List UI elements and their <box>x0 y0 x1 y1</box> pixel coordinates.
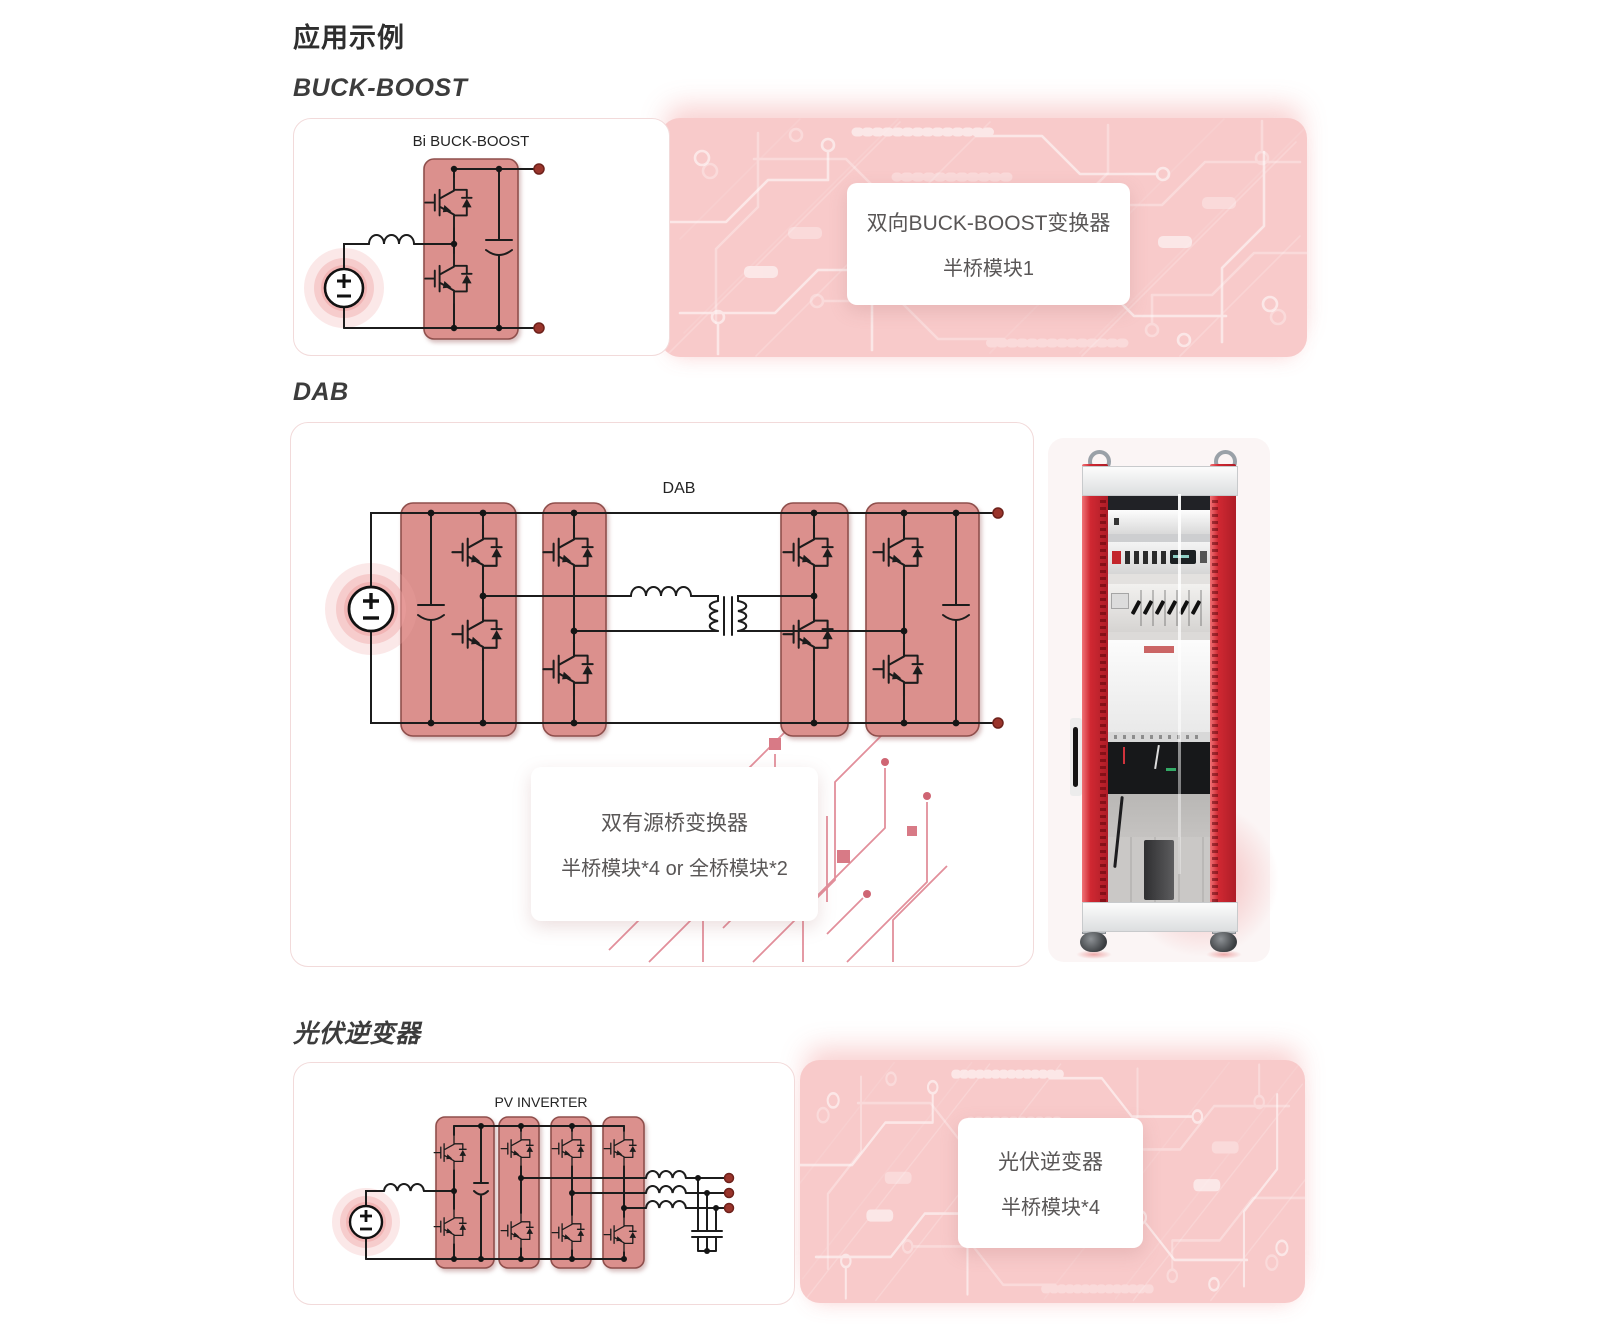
half-bridge-module <box>424 159 518 339</box>
callout-line2: 半桥模块1 <box>943 252 1034 281</box>
rack-bottom-compartment <box>1108 794 1210 908</box>
buck-boost-circuit-card: Bi BUCK-BOOST <box>293 118 670 356</box>
phase-terminal-b <box>725 1189 734 1198</box>
voltage-source <box>349 587 393 631</box>
circuit-title: Bi BUCK-BOOST <box>413 133 530 150</box>
rack-bottom-panel <box>1082 902 1238 932</box>
section-heading-buck-boost: BUCK-BOOST <box>293 74 467 103</box>
rack-shelf-controller <box>1108 510 1210 534</box>
rack-detail <box>1108 534 1210 542</box>
rack-rail-right <box>1210 464 1236 922</box>
rack-rail-left <box>1082 464 1108 922</box>
callout-line2: 半桥模块*4 <box>1001 1191 1100 1220</box>
rack-shelf-unit <box>1108 640 1210 732</box>
pv-inverter-circuit-diagram: PV INVERTER <box>294 1063 794 1304</box>
pv-callout: 光伏逆变器 半桥模块*4 <box>958 1118 1143 1248</box>
callout-line2: 半桥模块*4 or 全桥模块*2 <box>561 852 788 881</box>
rack-shelf-power-supply <box>1108 542 1210 574</box>
section-heading-dab: DAB <box>293 378 349 407</box>
circuit-title: DAB <box>663 480 696 497</box>
phase-terminal-a <box>725 1174 734 1183</box>
rack-top-panel <box>1082 466 1238 496</box>
page-title: 应用示例 <box>293 16 405 55</box>
rack-shelf-breakers <box>1108 584 1210 632</box>
wires <box>366 1126 729 1259</box>
output-terminal-positive <box>993 508 1003 518</box>
equipment-rack-photo <box>1048 438 1270 962</box>
rack-shelf-instrument <box>1108 742 1210 794</box>
voltage-source <box>350 1206 382 1238</box>
dab-circuit-diagram: DAB <box>291 423 1033 763</box>
door-handle <box>1070 718 1082 796</box>
rack-detail <box>1108 494 1210 510</box>
callout-line1: 光伏逆变器 <box>998 1146 1103 1176</box>
title-underline-bar <box>293 56 546 65</box>
page: 应用示例 BUCK-BOOST Bi BUCK-BOOST <box>0 0 1600 1326</box>
output-terminal-negative <box>534 323 544 333</box>
phase-terminal-c <box>725 1204 734 1213</box>
pv-circuit-card: PV INVERTER <box>293 1062 795 1305</box>
output-terminal-negative <box>993 718 1003 728</box>
rack-detail <box>1108 574 1210 584</box>
dab-circuit-card: DAB <box>290 422 1034 967</box>
callout-line1: 双有源桥变换器 <box>601 807 748 837</box>
callout-line1: 双向BUCK-BOOST变换器 <box>867 207 1111 237</box>
rack-cabinet <box>1066 450 1252 950</box>
buck-boost-circuit-diagram: Bi BUCK-BOOST <box>294 119 669 355</box>
rack-detail <box>1108 632 1210 640</box>
buck-boost-callout: 双向BUCK-BOOST变换器 半桥模块1 <box>847 183 1130 305</box>
section-heading-pv: 光伏逆变器 <box>293 1014 421 1050</box>
circuit-title: PV INVERTER <box>494 1094 587 1110</box>
rack-interior <box>1108 494 1210 908</box>
dab-callout: 双有源桥变换器 半桥模块*4 or 全桥模块*2 <box>531 767 818 921</box>
glass-reflection <box>1178 494 1181 874</box>
rack-vent <box>1108 732 1210 742</box>
voltage-source <box>325 269 363 307</box>
output-terminal-positive <box>534 164 544 174</box>
